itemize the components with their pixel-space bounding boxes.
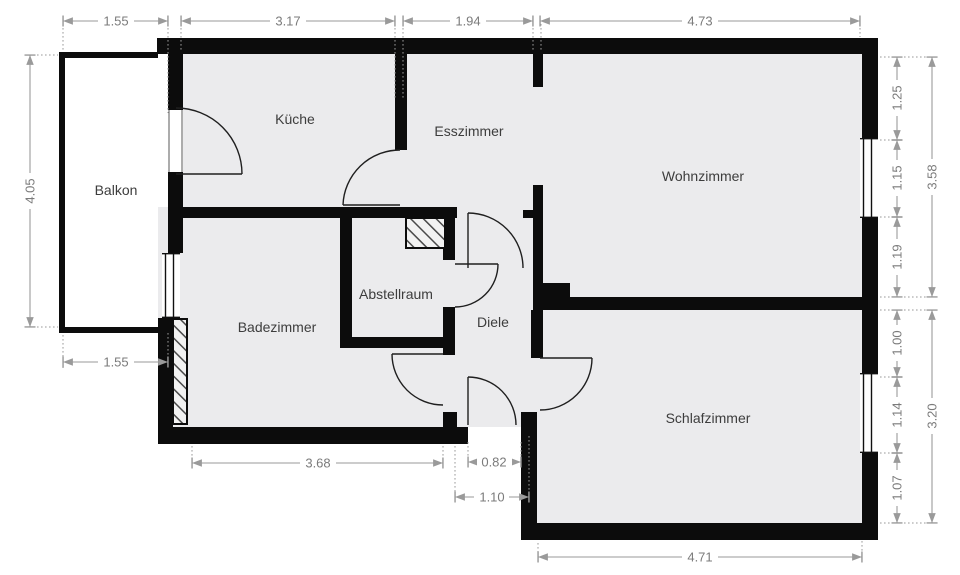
dim-left-balcony-height: 4.05 [22,55,38,327]
wall-right-lower [862,453,878,523]
dim-label: 0.82 [481,455,506,470]
dim-right-living-total: 3.58 [924,57,940,297]
dim-bottom-hall: 1.10 [455,489,529,505]
floor-areas [158,38,878,523]
dim-label: 1.00 [890,330,905,355]
dim-label: 1.55 [103,355,128,370]
dim-right-bedroom-total: 3.20 [924,310,940,523]
room-label-balkon: Balkon [95,182,138,198]
dim-label: 4.73 [687,14,712,29]
wall-kitchen-bath-divider [168,207,352,218]
window-living-right [860,138,878,218]
floor-plan-page: 1.55 3.17 1.94 4.73 4.05 1.55 [0,0,960,575]
room-label-abstellraum: Abstellraum [359,286,433,302]
balcony-wall-top [59,52,158,58]
wall-storage-right-lower [443,307,455,355]
wall-kitchen-east-foot [395,207,407,218]
dim-label: 3.20 [925,403,940,428]
dim-right-bedroom-2: 1.07 [889,453,905,523]
balcony-wall-left [59,52,65,333]
wall-dining-living-stub [533,54,543,87]
window-bedroom-right [860,373,878,453]
dim-label: 3.68 [305,456,330,471]
room-label-schlafzimmer: Schlafzimmer [666,410,751,426]
wall-right-upper [862,54,878,138]
wall-bottom-west [158,427,468,444]
wall-living-west-nib [523,210,533,218]
room-label-diele: Diele [477,314,509,330]
dim-label: 3.17 [275,14,300,29]
wall-storage-left [340,218,352,347]
dim-label: 4.71 [687,550,712,565]
dim-label: 1.25 [890,85,905,110]
dim-right-bedroom-window: 1.14 [889,377,905,453]
dim-bottom-entrance: 0.82 [468,454,521,470]
dim-label: 1.07 [890,475,905,500]
room-label-badezimmer: Badezimmer [238,319,317,335]
dim-top-kitchen: 3.17 [181,13,395,29]
dim-top-dining: 1.94 [403,13,533,29]
dim-right-living-1: 1.25 [889,57,905,140]
dim-label: 1.15 [890,165,905,190]
dim-bottom-bedroom: 4.71 [538,549,862,565]
dim-bottom-bath: 3.68 [192,455,443,471]
dim-top-living: 4.73 [540,13,860,29]
balcony-wall-bottom [59,327,158,333]
wall-bedroom-bottom [521,523,878,540]
wall-bedroom-west-upper [531,310,543,358]
dim-top-balcony: 1.55 [63,13,168,29]
dim-right-living-window: 1.15 [889,140,905,217]
dim-label: 1.10 [479,490,504,505]
dim-right-bedroom-1: 1.00 [889,310,905,377]
dim-label: 1.55 [103,14,128,29]
dim-label: 3.58 [925,164,940,189]
wall-left-upper [168,54,183,110]
dim-label: 1.14 [890,402,905,427]
wall-storage-bottom [340,337,443,348]
floor-plan-drawing: 1.55 3.17 1.94 4.73 4.05 1.55 [0,0,960,575]
room-label-kueche: Küche [275,111,315,127]
dim-label: 1.19 [890,244,905,269]
dim-left-balcony-width-bottom: 1.55 [63,354,168,370]
wall-living-bedroom-divider [537,297,862,310]
hatched-wall-shaft [406,218,445,248]
room-label-esszimmer: Esszimmer [434,123,504,139]
wall-kitchen-east [395,54,407,150]
window-bath-left [162,253,180,318]
wall-top [157,38,878,54]
dim-right-living-2: 1.19 [889,217,905,297]
wall-bath-door-jamb [443,412,457,427]
room-label-wohnzimmer: Wohnzimmer [662,168,745,184]
dim-label: 1.94 [455,14,480,29]
wall-left-lower [158,318,173,444]
wall-right-mid [862,218,878,373]
hatched-wall-left [173,319,187,424]
wall-divider-end-block [537,283,570,310]
dim-label: 4.05 [23,178,38,203]
